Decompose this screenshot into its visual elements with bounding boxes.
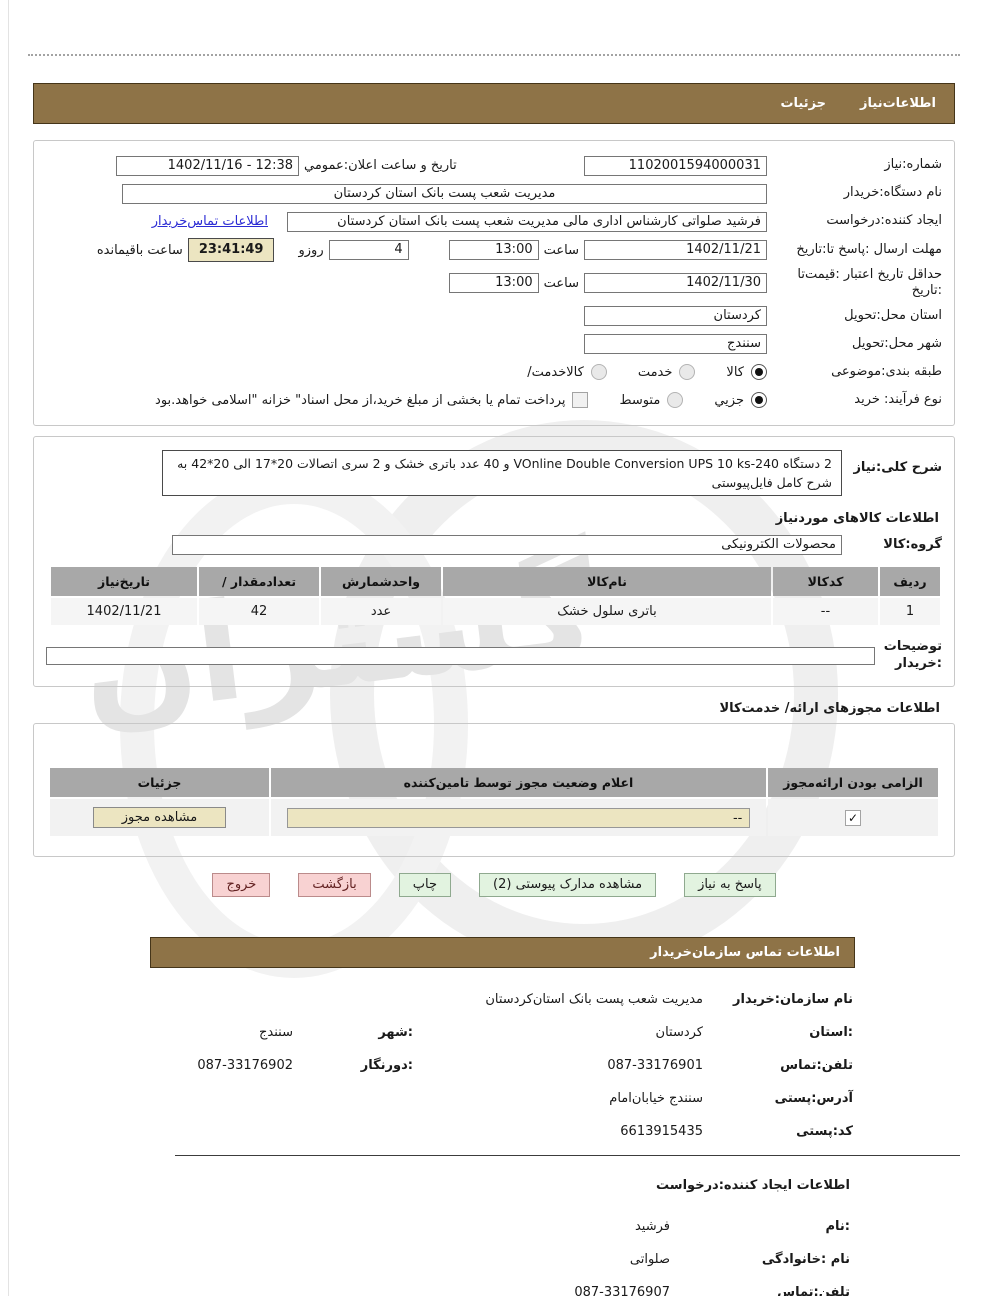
buyer-org-field[interactable]: مدیریت شعب پست بانک استان کردستان [122,184,767,204]
minor-radio[interactable] [751,392,767,408]
col-header-item-code: کدکالا [773,567,878,596]
creator-name-label: :نام [670,1219,850,1234]
need-number-field[interactable]: 1102001594000031 [584,156,767,176]
goods-radio-label: کالا [726,365,744,380]
contact-address-row: آدرس:پستی سنندج خیابان‌امام [0,1089,853,1108]
col-header-unit: واحدشمارش [321,567,441,596]
contact-address-label: آدرس:پستی [703,1091,853,1106]
remaining-label: ساعت باقیمانده [97,243,183,258]
goods-group-label: گروه:کالا [847,537,942,552]
contact-postal-value: 6613915435 [413,1124,703,1139]
buyer-contact-section: نام سازمان:خریدار مدیریت شعب پست بانک اس… [0,990,853,1141]
exit-button[interactable]: خروج [212,873,270,897]
item-quantity: 42 [199,598,319,625]
price-validity-row: حداقل تاریخ اعتبار :قیمت‌تا :تاریخ 1402/… [46,267,942,300]
creator-phone-value: 087-33176907 [450,1285,670,1296]
contact-address-value: سنندج خیابان‌امام [413,1091,703,1106]
buyer-notes-label: توضیحات :خریدار [880,639,942,673]
creator-family-label: نام :خانوادگی [670,1252,850,1267]
permit-required-cell: ✓ [768,799,938,836]
creator-phone-label: تلفن:تماس [670,1285,850,1296]
section-divider [175,1155,960,1156]
request-creator-field[interactable]: فرشید صلواتی کارشناس اداری مالی مدیریت ش… [287,212,767,232]
item-row-number: 1 [880,598,940,625]
need-description-label: شرح کلی:نیاز [847,460,942,475]
permit-details-cell: مشاهده مجوز [50,799,269,836]
contact-fax-value: 087-33176902 [197,1058,293,1073]
announce-group: تاریخ و ساعت اعلان:عمومي 12:38 - 1402/11… [116,156,457,176]
request-creator-row: ایجاد کننده:درخواست فرشید صلواتی کارشناس… [46,210,942,233]
contact-phone-label: تلفن:تماس [703,1058,853,1073]
goods-group-field[interactable]: محصولات الکترونیکی [172,535,842,555]
contact-city-value: سنندج [259,1025,293,1040]
validity-date-field[interactable]: 1402/11/30 [584,273,767,293]
request-creator-label: ایجاد کننده:درخواست [772,213,942,229]
deadline-label: مهلت ارسال :پاسخ تا:تاریخ [772,242,942,258]
delivery-city-field[interactable]: سنندج [584,334,767,354]
action-buttons: پاسخ به نیاز مشاهده مدارک پیوستی (2) چاپ… [0,873,988,897]
payment-option: پرداخت تمام یا بخشی از مبلغ خرید،از محل … [155,392,588,408]
service-radio-label: خدمت [638,365,673,380]
remaining-time-badge: 23:41:49 [188,238,275,262]
goods-group-row: گروه:کالا محصولات الکترونیکی [46,533,942,556]
need-description-row: شرح کلی:نیاز 2 دستگاه VOnline Double Con… [46,450,942,497]
view-attachments-button[interactable]: مشاهده مدارک پیوستی (2) [479,873,656,897]
buyer-notes-field[interactable] [46,647,875,665]
creator-family-row: نام :خانوادگی صلواتی [0,1250,850,1269]
days-label: روزو [298,243,323,258]
col-header-permit-required: الزامی بودن ارائه‌مجوز [768,768,938,797]
payment-checkbox[interactable] [572,392,588,408]
items-heading: اطلاعات کالاهای موردنیاز [49,511,939,526]
delivery-city-label: شهر محل:تحویل [772,336,942,352]
tab-details[interactable]: جزئیات [780,96,826,111]
process-type-row: نوع فرآیند: خرید جزیي متوسط پرداخت تمام … [46,389,942,412]
delivery-province-field[interactable]: کردستان [584,306,767,326]
contact-postal-label: کد:پستی [703,1124,853,1139]
category-option-goods-service: کالاخدمت/ [527,364,607,380]
category-option-service: خدمت [638,364,696,380]
page: گستران اطلاعات‌نیاز جزئیات شماره:نیاز 11… [0,0,988,1296]
minor-radio-label: جزیي [714,393,744,408]
contact-fax-label: :دورنگار [293,1058,413,1073]
item-code: -- [773,598,878,625]
col-header-need-date: تاریخ‌نیاز [51,567,197,596]
medium-radio-label: متوسط [619,393,660,408]
goods-radio[interactable] [751,364,767,380]
buyer-notes-row: توضیحات :خریدار [46,639,942,673]
permits-panel: الزامی بودن ارائه‌مجوز اعلام وضعیت مجوز … [33,723,955,857]
contact-phone-value: 087-33176901 [413,1058,703,1073]
delivery-city-row: شهر محل:تحویل سنندج [46,333,942,356]
contact-org-label: نام سازمان:خریدار [703,992,853,1007]
announce-label: تاریخ و ساعت اعلان:عمومي [304,158,457,173]
process-option-medium: متوسط [619,392,683,408]
process-type-label: نوع فرآیند: خرید [772,392,942,408]
deadline-time-field[interactable]: 13:00 [449,240,539,260]
contact-org-value: مدیریت شعب پست بانک استان‌کردستان [413,992,703,1007]
subject-category-label: طبقه بندی:موضوعی [772,364,942,380]
announce-field[interactable]: 12:38 - 1402/11/16 [116,156,299,176]
contact-org-row: نام سازمان:خریدار مدیریت شعب پست بانک اس… [0,990,853,1009]
view-permit-button[interactable]: مشاهده مجوز [93,807,227,828]
col-header-item-name: نام‌کالا [443,567,771,596]
permit-status-field[interactable]: -- [287,808,751,828]
deadline-date-field[interactable]: 1402/11/21 [584,240,767,260]
permit-required-checkbox[interactable]: ✓ [845,810,861,826]
buyer-contact-header: اطلاعات تماس سازمان‌خریدار [150,937,855,968]
items-table: ردیف کدکالا نام‌کالا واحدشمارش تعدادمقدا… [48,567,940,625]
tab-bar: اطلاعات‌نیاز جزئیات [33,83,955,124]
price-validity-label: حداقل تاریخ اعتبار :قیمت‌تا :تاریخ [772,267,942,300]
need-description-field[interactable]: 2 دستگاه VOnline Double Conversion UPS 1… [162,450,842,497]
buyer-org-row: نام دستگاه:خریدار مدیریت شعب پست بانک اس… [46,182,942,205]
print-button[interactable]: چاپ [399,873,451,897]
need-number-label: شماره:نیاز [772,157,942,173]
process-option-minor: جزیي [714,392,767,408]
creator-family-value: صلواتی [450,1252,670,1267]
subject-category-row: طبقه بندی:موضوعی کالا خدمت کالاخدمت/ [46,361,942,384]
buyer-contact-link[interactable]: اطلاعات تماس‌خریدار [152,214,268,229]
permits-heading: اطلاعات مجوزهای ارائه/ خدمت‌کالا [48,701,940,716]
need-summary-panel: شماره:نیاز 1102001594000031 تاریخ و ساعت… [33,140,955,426]
contact-city-label: :شهر [293,1025,413,1040]
deadline-hour-label: ساعت [544,243,579,258]
creator-phone-row: تلفن:تماس 087-33176907 [0,1283,850,1296]
permits-table: الزامی بودن ارائه‌مجوز اعلام وضعیت مجوز … [50,768,938,836]
item-need-date: 1402/11/21 [51,598,197,625]
deadline-row: مهلت ارسال :پاسخ تا:تاریخ 1402/11/21 ساع… [46,238,942,262]
creator-name-row: :نام فرشید [0,1217,850,1236]
contact-postal-row: کد:پستی 6613915435 [0,1122,853,1141]
contact-province-label: :استان [703,1025,853,1040]
creator-info-heading: اطلاعات ایجاد کننده:درخواست [0,1178,850,1193]
contact-phone-fax-row: تلفن:تماس 087-33176901 :دورنگار 087-3317… [0,1056,853,1075]
days-field[interactable]: 4 [329,240,409,260]
validity-hour-label: ساعت [544,276,579,291]
goods-service-radio-label: کالاخدمت/ [527,365,584,380]
need-number-row: شماره:نیاز 1102001594000031 تاریخ و ساعت… [46,154,942,177]
validity-time-field[interactable]: 13:00 [449,273,539,293]
goods-service-radio[interactable] [591,364,607,380]
checkmark-icon: ✓ [848,812,858,824]
tab-need-info[interactable]: اطلاعات‌نیاز [860,96,936,111]
service-radio[interactable] [679,364,695,380]
contact-province-value: کردستان [413,1025,703,1040]
category-option-goods: کالا [726,364,767,380]
item-unit: عدد [321,598,441,625]
creator-name-value: فرشید [450,1219,670,1234]
col-header-permit-status: اعلام وضعیت مجوز توسط تامین‌کننده [271,768,766,797]
creator-info-section: اطلاعات ایجاد کننده:درخواست :نام فرشید ن… [0,1178,850,1296]
buyer-contact-header-title: اطلاعات تماس سازمان‌خریدار [650,945,840,960]
payment-checkbox-label: پرداخت تمام یا بخشی از مبلغ خرید،از محل … [155,393,565,408]
col-header-permit-details: جزئیات [50,768,269,797]
respond-button[interactable]: پاسخ به نیاز [684,873,776,897]
items-panel: شرح کلی:نیاز 2 دستگاه VOnline Double Con… [33,436,955,688]
dotted-divider [28,54,960,56]
item-name: باتری سلول خشک [443,598,771,625]
permit-status-cell: -- [271,799,766,836]
col-header-row-number: ردیف [880,567,940,596]
buyer-org-label: نام دستگاه:خریدار [772,185,942,201]
delivery-province-row: استان محل:تحویل کردستان [46,305,942,328]
medium-radio[interactable] [667,392,683,408]
contact-province-city-row: :استان کردستان :شهر سنندج [0,1023,853,1042]
col-header-quantity: تعدادمقدار / [199,567,319,596]
back-button[interactable]: بازگشت [298,873,370,897]
delivery-province-label: استان محل:تحویل [772,308,942,324]
